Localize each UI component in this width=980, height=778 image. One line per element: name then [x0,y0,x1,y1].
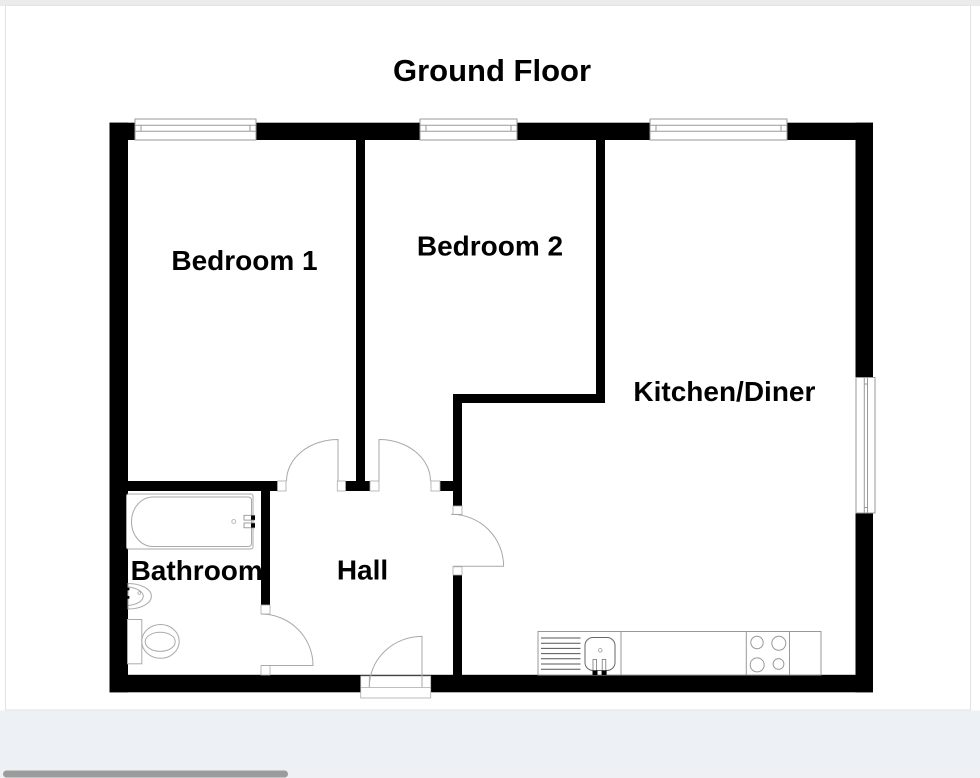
svg-text:Bedroom 2: Bedroom 2 [417,231,563,262]
svg-text:Ground Floor: Ground Floor [393,53,591,88]
svg-text:Kitchen/Diner: Kitchen/Diner [633,376,815,407]
svg-text:Bedroom 1: Bedroom 1 [171,245,317,276]
svg-text:Hall: Hall [337,555,388,586]
svg-text:Bathroom: Bathroom [131,555,263,586]
